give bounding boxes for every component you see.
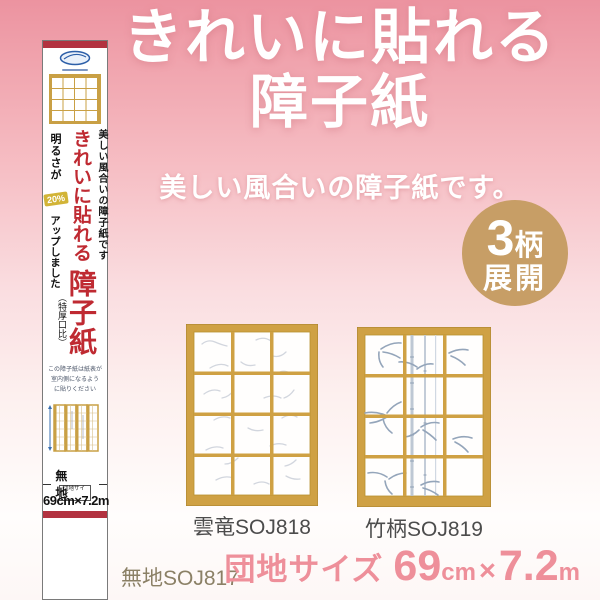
package-top-band xyxy=(43,41,107,48)
product-package: 美しい風合いの障子紙です きれいに貼れる 障子紙 明るさが 20% アップしまし… xyxy=(42,40,108,600)
badge-unit: 柄 xyxy=(514,232,543,261)
page-title: きれいに貼れる 障子紙 xyxy=(110,4,570,136)
package-shoji-grid-image xyxy=(49,74,101,124)
size-width-unit: cm xyxy=(441,561,476,585)
shoji-screen-unryu xyxy=(186,324,318,511)
size-length-number: 7.2 xyxy=(499,545,559,588)
package-caption: この障子紙は紙表が 室内側になるよう に貼りください xyxy=(43,365,107,396)
brand-wordmark xyxy=(62,69,88,71)
multiply-sign: × xyxy=(479,557,496,586)
package-tagline: 美しい風合いの障子紙です xyxy=(94,129,109,261)
brand-logo-icon xyxy=(59,50,91,71)
size-length-unit: m xyxy=(559,561,580,585)
shoji-screen-bamboo xyxy=(357,327,491,512)
package-up-label: アップしました xyxy=(48,215,63,289)
package-size-value: 69cm×7.2m xyxy=(43,493,107,508)
package-main-text-top: きれいに貼れる xyxy=(67,129,94,262)
size-width-number: 69 xyxy=(393,545,441,588)
size-info: 団地サイズ 69 cm × 7.2 m xyxy=(224,545,580,588)
product-banner: きれいに貼れる 障子紙 美しい風合いの障子紙です。 3柄 展開 美しい風合いの障… xyxy=(0,0,600,600)
package-note: （特厚口比） xyxy=(56,293,69,347)
product-label-bamboo: 竹柄SOJ819 xyxy=(353,513,495,543)
badge-line1: 3柄 xyxy=(487,213,544,263)
package-lower-band xyxy=(43,511,107,518)
plain-product-code: 無地SOJ817 xyxy=(121,562,239,592)
badge-word: 展開 xyxy=(483,265,547,294)
rule-right xyxy=(99,484,107,485)
badge-count: 3 xyxy=(487,213,515,263)
rule-left xyxy=(43,484,51,485)
title-line1: きれいに貼れる xyxy=(110,4,570,71)
pattern-count-badge: 3柄 展開 xyxy=(462,200,568,306)
package-bright-label: 明るさが xyxy=(47,133,63,181)
product-label-unryu: 雲竜SOJ818 xyxy=(186,511,318,541)
title-line2: 障子紙 xyxy=(110,71,570,136)
size-prefix: 団地サイズ xyxy=(224,554,383,585)
subtitle: 美しい風合いの障子紙です。 xyxy=(110,166,570,205)
shoji-panels-illustration xyxy=(47,399,103,464)
package-percent-badge: 20% xyxy=(43,191,68,206)
